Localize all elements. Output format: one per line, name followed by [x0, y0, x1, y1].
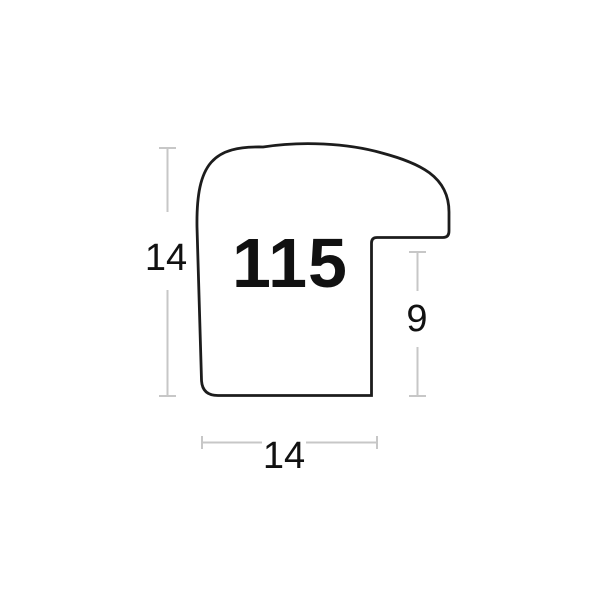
height-dimension-label: 14 — [145, 239, 187, 277]
profile-number-label: 115 — [232, 228, 348, 298]
moulding-cross-section-diagram: 115 14 14 9 — [0, 0, 600, 600]
rabbet-dimension-label: 9 — [406, 300, 427, 338]
width-dimension-label: 14 — [263, 437, 305, 475]
